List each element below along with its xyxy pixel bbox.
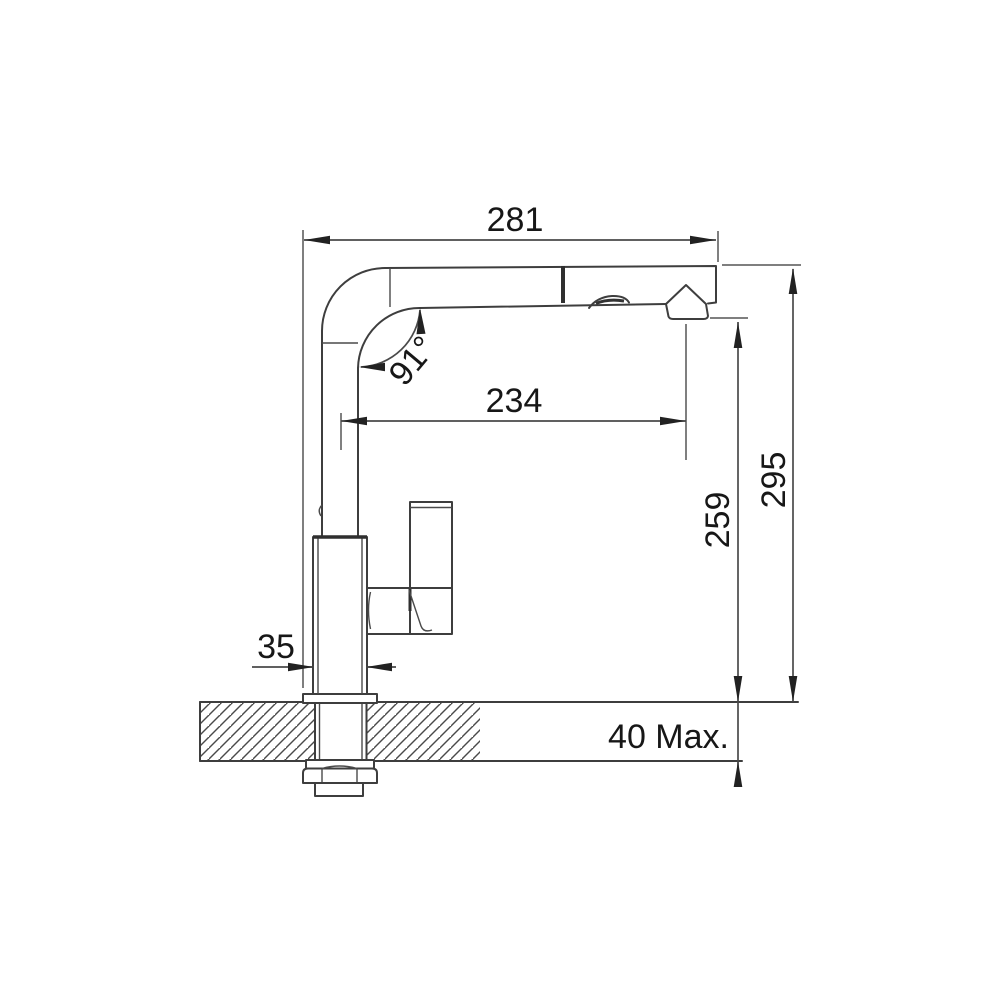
handle-lever bbox=[410, 502, 452, 634]
dim-max-counter-thickness: 40 Max. bbox=[608, 718, 742, 787]
countertop-hatch-right bbox=[367, 703, 481, 760]
dim-40-label: 40 Max. bbox=[608, 718, 729, 756]
dim-234-arrow-right bbox=[660, 417, 686, 426]
dim-295-arrow-top bbox=[789, 268, 798, 294]
drawing-canvas: 281 234 91° 259 295 40 Max. bbox=[0, 0, 1000, 1000]
dim-overall-height: 295 bbox=[722, 265, 801, 702]
dim-295-label: 295 bbox=[755, 452, 793, 509]
dim-spout-angle: 91° bbox=[359, 308, 444, 393]
angle-label: 91° bbox=[381, 329, 443, 393]
dim-281-arrow-right bbox=[690, 236, 716, 245]
dim-234-arrow-left bbox=[341, 417, 367, 426]
countertop-hatch-left bbox=[201, 703, 315, 760]
base-flange bbox=[303, 694, 377, 703]
dim-259-label: 259 bbox=[699, 492, 737, 549]
lower-body-inner-edges bbox=[318, 537, 362, 694]
faucet-dimension-drawing: 281 234 91° 259 295 40 Max. bbox=[0, 0, 1000, 1000]
dim-35-arrow-right bbox=[366, 663, 392, 672]
dim-281-arrow-left bbox=[304, 236, 330, 245]
dim-40-arrow-up bbox=[734, 761, 743, 787]
dim-259-arrow-bottom bbox=[734, 676, 743, 702]
elbow-outer-arc bbox=[322, 268, 385, 331]
threaded-shank bbox=[320, 703, 363, 760]
hex-nut bbox=[303, 769, 377, 784]
dim-295-arrow-bottom bbox=[789, 676, 798, 702]
spout-top-and-right-edge bbox=[385, 266, 716, 304]
mounting-hole-edges bbox=[315, 703, 367, 760]
dim-281-label: 281 bbox=[487, 201, 544, 239]
lower-body-outer-edges bbox=[313, 537, 367, 694]
spray-toggle-button-inner bbox=[596, 300, 624, 303]
handle-connector-block bbox=[367, 588, 410, 634]
aerator-nozzle bbox=[666, 285, 708, 319]
handle bbox=[367, 502, 452, 634]
spray-head bbox=[563, 266, 708, 319]
angle-arrow-bottom bbox=[359, 363, 385, 372]
dim-234-label: 234 bbox=[486, 382, 543, 420]
spout-bottom-edge bbox=[420, 304, 666, 308]
dim-overall-reach: 281 bbox=[303, 201, 718, 688]
washer bbox=[306, 760, 374, 769]
dim-height-to-aerator: 259 bbox=[699, 318, 748, 786]
dim-reach-to-aerator: 234 bbox=[341, 324, 686, 460]
dim-35-label: 35 bbox=[257, 628, 295, 666]
supply-sleeve bbox=[315, 783, 363, 796]
dim-259-arrow-top bbox=[734, 322, 743, 348]
